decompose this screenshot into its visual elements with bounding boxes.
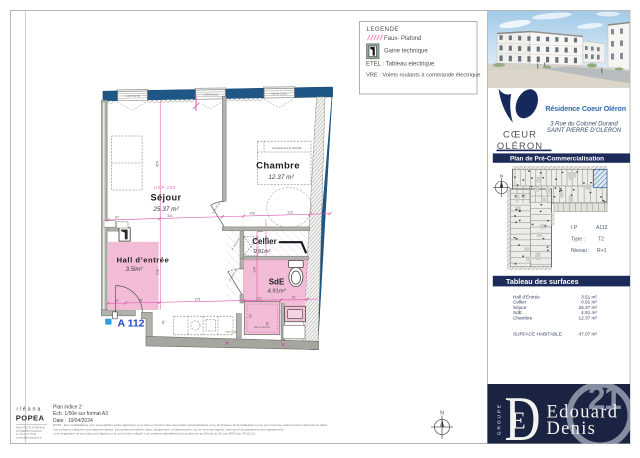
svg-text:SdE: SdE: [269, 278, 285, 287]
svg-text:3 Rue du Colonel Durand: 3 Rue du Colonel Durand: [550, 122, 618, 128]
svg-text:Résidence Coeur Oléron: Résidence Coeur Oléron: [545, 105, 626, 113]
svg-text:53: 53: [249, 314, 253, 318]
svg-text:A 112: A 112: [117, 318, 144, 330]
svg-text:N: N: [500, 174, 503, 179]
svg-text:POPEA: POPEA: [16, 414, 45, 423]
svg-text:Séjour: Séjour: [151, 193, 182, 203]
svg-text:R+1: R+1: [597, 248, 607, 254]
svg-text:76: 76: [292, 296, 296, 300]
svg-text:SURFACE HABITABLE: SURFACE HABITABLE: [513, 332, 562, 337]
svg-text:25.37 m²: 25.37 m²: [152, 206, 179, 213]
svg-text:3.5lm²: 3.5lm²: [126, 267, 144, 273]
svg-text:CŒUR: CŒUR: [503, 129, 537, 140]
svg-text:Niveau :: Niveau :: [571, 248, 590, 254]
svg-text:Lave-Linge: Lave-Linge: [225, 331, 238, 334]
svg-text:Type :: Type :: [571, 237, 585, 243]
svg-text:I.P: I.P: [571, 225, 578, 231]
svg-text:Emplacement lit 140x190: Emplacement lit 140x190: [272, 146, 302, 150]
svg-text:ou la végétation ne sont pas t: ou la végétation ne sont pas tous figuré…: [53, 432, 256, 436]
svg-text:4.91m²: 4.91m²: [267, 289, 286, 295]
svg-text:Hall d’entrée: Hall d’entrée: [117, 256, 170, 265]
svg-text:Gaine technique: Gaine technique: [384, 49, 428, 55]
svg-text:12.37 m²: 12.37 m²: [268, 174, 294, 181]
svg-text:L.240 H1.05: L.240 H1.05: [203, 93, 218, 97]
svg-text:134: 134: [252, 267, 256, 273]
svg-text:contact@ileanapopea.fr: contact@ileanapopea.fr: [16, 437, 41, 440]
svg-text:SAINT PIERRE D’OLERON: SAINT PIERRE D’OLERON: [547, 128, 622, 134]
svg-text:L.240 H1.05: L.240 H1.05: [125, 94, 140, 98]
svg-text:Garde Corps: Garde Corps: [272, 91, 288, 95]
svg-text:208: 208: [156, 269, 160, 275]
svg-text:Faux- Plafond: Faux- Plafond: [384, 36, 421, 42]
svg-text:78: 78: [266, 322, 270, 326]
svg-text:Plan de Pré-Commercialisation: Plan de Pré-Commercialisation: [510, 156, 604, 163]
svg-text:N: N: [440, 411, 444, 417]
svg-text:273: 273: [195, 298, 201, 302]
svg-text:100: 100: [250, 212, 256, 216]
svg-text:iléana: iléana: [17, 407, 43, 413]
svg-text:ETEL : Tableau electrique: ETEL : Tableau electrique: [366, 62, 435, 68]
svg-text:GROUPE: GROUPE: [497, 403, 503, 435]
svg-text:LEGENDE: LEGENDE: [367, 26, 399, 33]
svg-text:12.37 m²: 12.37 m²: [579, 315, 598, 320]
svg-text:Cellier: Cellier: [252, 237, 276, 246]
svg-text:E: E: [511, 409, 526, 435]
svg-text:VRE : Volets roulants à comman: VRE : Volets roulants à commande électri…: [366, 73, 480, 79]
svg-text:Tableau des surfaces: Tableau des surfaces: [506, 277, 579, 286]
svg-text:T2: T2: [598, 237, 604, 243]
svg-text:Ech. 1/50e sur format A3: Ech. 1/50e sur format A3: [53, 411, 108, 417]
svg-text:A112: A112: [596, 225, 608, 231]
svg-text:311: 311: [167, 214, 173, 218]
svg-text:78: 78: [162, 321, 166, 325]
svg-text:Chambre: Chambre: [256, 161, 300, 172]
svg-text:88: 88: [139, 298, 143, 302]
svg-text:123: 123: [287, 211, 293, 215]
svg-text:HSP 250: HSP 250: [154, 185, 176, 190]
svg-text:OLÉRON: OLÉRON: [497, 140, 543, 151]
svg-text:67: 67: [115, 215, 119, 219]
svg-text:Plan indice 2: Plan indice 2: [53, 405, 82, 411]
svg-text:Chambre: Chambre: [513, 315, 533, 320]
svg-text:0.91m²: 0.91m²: [254, 249, 271, 255]
svg-text:474: 474: [156, 161, 160, 167]
svg-text:67: 67: [115, 299, 119, 303]
svg-text:Denis: Denis: [547, 419, 597, 439]
svg-text:47.07 m²: 47.07 m²: [579, 332, 598, 337]
